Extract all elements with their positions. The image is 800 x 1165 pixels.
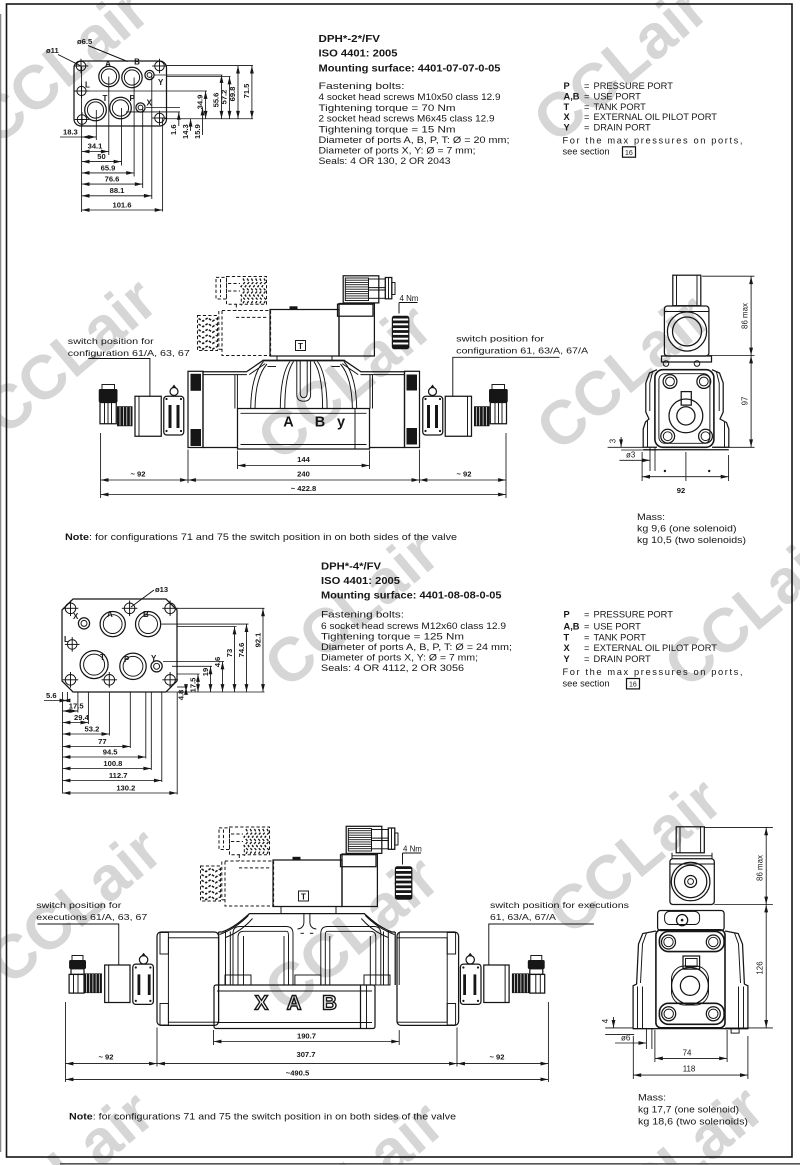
- svg-text:307.7: 307.7: [296, 1050, 315, 1059]
- svg-text:А: А: [283, 414, 294, 430]
- svg-text:~ 422.8: ~ 422.8: [291, 484, 317, 493]
- svg-text:Note: for configurations 71 an: Note: for configurations 71 and 75 the s…: [69, 1112, 456, 1122]
- svg-text:Seals: 4 OR 4112, 2 OR 3056: Seals: 4 OR 4112, 2 OR 3056: [321, 663, 464, 673]
- svg-text:EXTERNAL OIL PILOT PORT: EXTERNAL OIL PILOT PORT: [594, 643, 718, 653]
- svg-text:TANK PORT: TANK PORT: [594, 102, 647, 112]
- svg-text:4.6: 4.6: [213, 657, 222, 668]
- svg-text:Mounting surface: 4401-07-07-0: Mounting surface: 4401-07-07-0-05: [319, 64, 502, 75]
- svg-text:=: =: [584, 102, 589, 112]
- svg-text:kg 9,6 (one solenoid): kg 9,6 (one solenoid): [637, 524, 737, 534]
- svg-text:3: 3: [609, 438, 618, 443]
- svg-text:executions 61/A, 63, 67: executions 61/A, 63, 67: [36, 912, 147, 922]
- svg-text:4 Nm: 4 Nm: [403, 845, 422, 854]
- svg-text:DRAIN PORT: DRAIN PORT: [594, 654, 651, 664]
- svg-text:=: =: [584, 643, 589, 653]
- svg-text:101.6: 101.6: [112, 200, 131, 209]
- svg-text:190.7: 190.7: [297, 1032, 316, 1041]
- svg-text:92: 92: [677, 486, 685, 495]
- svg-text:86 max: 86 max: [741, 303, 750, 329]
- svg-text:Fastening bolts:: Fastening bolts:: [321, 610, 404, 620]
- svg-text:ISO 4401: 2005: ISO 4401: 2005: [319, 49, 399, 60]
- svg-text:P: P: [564, 610, 570, 620]
- svg-text:T: T: [103, 94, 108, 103]
- svg-text:16: 16: [625, 150, 633, 157]
- svg-text:50: 50: [97, 152, 105, 161]
- svg-text:DRAIN PORT: DRAIN PORT: [594, 123, 651, 133]
- svg-text:=: =: [584, 112, 589, 122]
- svg-text:B: B: [134, 58, 140, 67]
- svg-text:L: L: [64, 635, 69, 644]
- svg-text:118: 118: [683, 1065, 696, 1074]
- svg-text:Y: Y: [564, 123, 571, 133]
- svg-text:switch position for executions: switch position for executions: [490, 900, 629, 910]
- svg-text:Seals: 4 OR 130, 2 OR 2043: Seals: 4 OR 130, 2 OR 2043: [319, 156, 451, 166]
- svg-text:4 socket head screws M10x50 cl: 4 socket head screws M10x50 class 12.9: [319, 92, 501, 102]
- svg-text:ø13: ø13: [155, 585, 168, 594]
- svg-text:X: X: [73, 612, 79, 621]
- svg-text:88.1: 88.1: [110, 186, 126, 195]
- svg-text:configuration 61, 63/A, 67/A: configuration 61, 63/A, 67/A: [456, 346, 588, 356]
- svg-text:USE PORT: USE PORT: [594, 91, 642, 101]
- svg-text:Fastening bolts:: Fastening bolts:: [319, 81, 405, 91]
- svg-text:16: 16: [629, 682, 637, 689]
- svg-text:73: 73: [225, 649, 234, 657]
- svg-text:~ 92: ~ 92: [457, 470, 472, 479]
- svg-text:T: T: [564, 102, 570, 112]
- svg-text:X: X: [255, 992, 269, 1015]
- svg-text:T: T: [564, 632, 570, 642]
- svg-text:~ 92: ~ 92: [99, 1053, 114, 1062]
- svg-text:4: 4: [601, 1018, 610, 1023]
- svg-text:see section: see section: [563, 679, 610, 689]
- svg-text:B: B: [322, 992, 337, 1015]
- svg-text:69.8: 69.8: [228, 87, 237, 102]
- svg-text:=: =: [584, 91, 589, 101]
- svg-text:EXTERNAL OIL PILOT PORT: EXTERNAL OIL PILOT PORT: [594, 112, 718, 122]
- svg-text:~ 92: ~ 92: [490, 1053, 505, 1062]
- svg-text:DPH*-4*/FV: DPH*-4*/FV: [321, 562, 382, 573]
- svg-text:1.6: 1.6: [169, 124, 178, 135]
- svg-text:ø3: ø3: [626, 451, 636, 460]
- svg-text:Note: for configurations 71 an: Note: for configurations 71 and 75 the s…: [65, 532, 457, 542]
- svg-text:kg 18,6 (two solenoids): kg 18,6 (two solenoids): [638, 1117, 748, 1127]
- svg-text:у: у: [337, 414, 345, 430]
- svg-text:USE PORT: USE PORT: [594, 622, 642, 632]
- svg-text:77: 77: [98, 737, 106, 746]
- svg-text:=: =: [584, 632, 589, 642]
- svg-text:74: 74: [683, 1049, 692, 1058]
- svg-text:DPH*-2*/FV: DPH*-2*/FV: [319, 34, 381, 45]
- svg-text:switch position for: switch position for: [36, 900, 121, 910]
- svg-text:A: A: [287, 992, 302, 1015]
- svg-text:53.2: 53.2: [85, 725, 100, 734]
- svg-text:97: 97: [741, 397, 750, 406]
- svg-text:17.5: 17.5: [189, 677, 198, 693]
- svg-text:=: =: [584, 610, 589, 620]
- svg-text:X: X: [564, 112, 571, 122]
- svg-text:PRESSURE PORT: PRESSURE PORT: [594, 610, 674, 620]
- svg-text:4.8: 4.8: [177, 690, 186, 701]
- svg-text:P: P: [124, 655, 130, 664]
- svg-text:112.7: 112.7: [109, 771, 128, 780]
- svg-text:A,B: A,B: [564, 622, 580, 632]
- svg-text:17.5: 17.5: [69, 702, 85, 711]
- svg-text:TANK PORT: TANK PORT: [594, 632, 647, 642]
- svg-text:P: P: [564, 81, 570, 91]
- svg-text:71.5: 71.5: [242, 83, 251, 99]
- svg-text:ø6.5: ø6.5: [77, 37, 93, 46]
- svg-text:For the max pressures on ports: For the max pressures on ports,: [563, 136, 743, 146]
- svg-text:15.9: 15.9: [193, 124, 202, 139]
- svg-text:5.6: 5.6: [46, 691, 57, 700]
- svg-text:Tightening torque = 15 Nm: Tightening torque = 15 Nm: [319, 125, 456, 135]
- svg-text:Y: Y: [158, 78, 164, 87]
- svg-text:Tightening torque = 70 Nm: Tightening torque = 70 Nm: [319, 103, 456, 113]
- svg-text:ISO 4401: 2005: ISO 4401: 2005: [321, 576, 401, 587]
- svg-text:Diameter of ports A, B, P, T:: Diameter of ports A, B, P, T: Ø = 20 mm;: [319, 135, 510, 145]
- svg-text:Mounting surface: 4401-08-08-0: Mounting surface: 4401-08-08-0-05: [321, 591, 502, 602]
- svg-text:A: A: [107, 610, 113, 619]
- svg-text:19: 19: [201, 668, 210, 676]
- svg-text:61, 63/A, 67/A: 61, 63/A, 67/A: [490, 912, 556, 922]
- svg-text:240: 240: [297, 470, 310, 479]
- svg-text:configuration 61/A, 63, 67: configuration 61/A, 63, 67: [68, 348, 190, 358]
- svg-text:34.1: 34.1: [88, 142, 104, 151]
- svg-text:34.9: 34.9: [196, 95, 205, 110]
- svg-text:A,B: A,B: [564, 91, 580, 101]
- svg-text:Y: Y: [151, 654, 157, 663]
- svg-text:130.2: 130.2: [116, 784, 135, 793]
- svg-text:29.4: 29.4: [74, 713, 90, 722]
- svg-text:PRESSURE PORT: PRESSURE PORT: [594, 81, 674, 91]
- svg-text:Diameter of ports A, B, P, T:: Diameter of ports A, B, P, T: Ø = 24 mm;: [321, 642, 512, 652]
- svg-text:Y: Y: [564, 654, 571, 664]
- svg-text:Tightening torque = 125 Nm: Tightening torque = 125 Nm: [321, 632, 464, 642]
- svg-text:ø11: ø11: [46, 46, 59, 55]
- svg-text:ø6: ø6: [621, 1034, 631, 1043]
- svg-text:144: 144: [297, 455, 310, 464]
- svg-text:~490.5: ~490.5: [286, 1069, 310, 1078]
- svg-text:=: =: [584, 654, 589, 664]
- svg-text:=: =: [584, 123, 589, 133]
- svg-text:switch position for: switch position for: [456, 334, 544, 344]
- svg-text:see section: see section: [563, 147, 610, 157]
- svg-text:76.6: 76.6: [105, 175, 120, 184]
- svg-text:A: A: [105, 60, 111, 69]
- svg-text:Diameter of ports X, Y: Ø = 7: Diameter of ports X, Y: Ø = 7 mm;: [319, 146, 476, 156]
- svg-text:В: В: [315, 414, 325, 430]
- svg-text:=: =: [584, 81, 589, 91]
- svg-text:T: T: [100, 653, 105, 662]
- svg-text:L: L: [85, 81, 90, 90]
- svg-text:For the max pressures on ports: For the max pressures on ports,: [563, 667, 743, 677]
- svg-text:65.9: 65.9: [101, 163, 116, 172]
- svg-text:14.3: 14.3: [181, 124, 190, 139]
- svg-text:Diameter of ports X, Y: Ø = 7: Diameter of ports X, Y: Ø = 7 mm;: [321, 653, 478, 663]
- svg-text:126: 126: [756, 961, 765, 975]
- svg-text:6 socket head screws M12x60 cl: 6 socket head screws M12x60 class 12.9: [321, 621, 506, 631]
- svg-text:kg 10,5 (two solenoids): kg 10,5 (two solenoids): [637, 535, 746, 545]
- svg-text:4 Nm: 4 Nm: [400, 294, 419, 303]
- svg-text:~ 92: ~ 92: [131, 470, 146, 479]
- svg-text:2 socket head screws M6x45 cla: 2 socket head screws M6x45 class 12.9: [319, 114, 495, 124]
- svg-text:=: =: [584, 622, 589, 632]
- svg-text:P: P: [130, 94, 136, 103]
- svg-text:100.8: 100.8: [103, 759, 122, 768]
- svg-text:86 max: 86 max: [756, 855, 765, 881]
- svg-text:kg 17,7 (one solenoid): kg 17,7 (one solenoid): [638, 1105, 739, 1115]
- svg-text:Mass:: Mass:: [638, 1093, 666, 1103]
- svg-text:92.1: 92.1: [254, 632, 263, 648]
- svg-text:T: T: [298, 342, 303, 351]
- svg-text:X: X: [564, 643, 571, 653]
- svg-text:74.6: 74.6: [237, 643, 246, 658]
- svg-text:B: B: [143, 610, 149, 619]
- svg-text:18.3: 18.3: [63, 128, 78, 137]
- svg-text:Mass:: Mass:: [637, 512, 665, 522]
- svg-text:switch position for: switch position for: [68, 336, 154, 346]
- svg-text:94.5: 94.5: [103, 748, 119, 757]
